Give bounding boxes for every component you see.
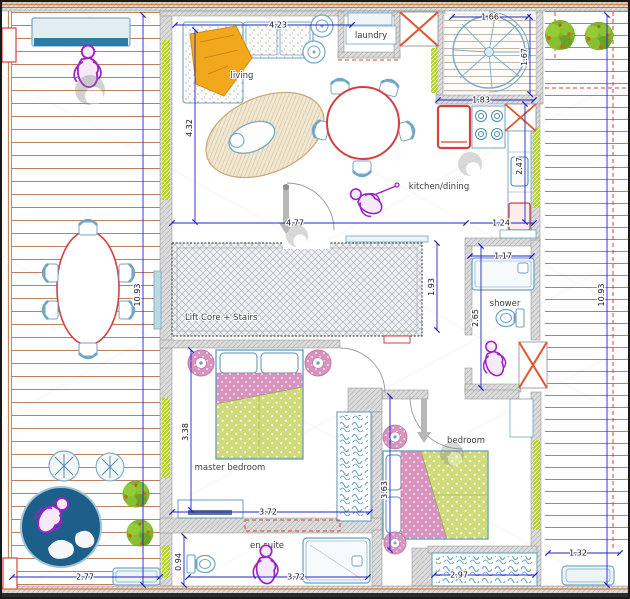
plant (545, 20, 575, 50)
floor-plan-screenshot: living laundry (0, 0, 630, 599)
dim-text: 3.38 (181, 423, 190, 441)
laundry-machine (348, 13, 392, 25)
window-living-west (162, 40, 170, 200)
lift-core-label: Lift Core + Stairs (185, 313, 258, 323)
window-master-west (162, 398, 170, 478)
side-table-2 (303, 41, 325, 63)
deck-chair (119, 264, 134, 282)
round-side-table (96, 453, 124, 481)
window-entry (431, 48, 438, 93)
pillow (386, 497, 401, 533)
dim-text: 2.65 (471, 309, 480, 327)
dim-text: 3.72 (287, 573, 305, 582)
round-side-table (49, 451, 79, 481)
dim-text: 1.67 (520, 48, 529, 66)
dim-text: 1.93 (427, 278, 436, 296)
bedside-rug (383, 425, 407, 449)
dining-table (327, 87, 399, 159)
deck-dining-table (57, 231, 119, 345)
side-table-1 (311, 15, 333, 37)
core-bench (384, 336, 410, 343)
dining-chair (353, 161, 371, 176)
lift-core: Lift Core + Stairs (172, 236, 428, 343)
pillow (220, 353, 257, 373)
window-ensuite-west (162, 545, 170, 577)
floor-plan-canvas: living laundry (0, 0, 630, 599)
bedside-rug (305, 350, 331, 376)
dim-text: 3.72 (259, 508, 277, 517)
bedroom-alcove (510, 399, 533, 437)
column-x-kitchen (505, 104, 536, 131)
shower-drain (518, 263, 528, 273)
deck-bench-mid (154, 271, 161, 329)
deck-right (545, 11, 628, 586)
window-kitchen-east (533, 128, 540, 208)
deck-bench-bottom-left (113, 568, 160, 585)
dim-text: 0.94 (174, 553, 183, 571)
dim-text: 1.66 (481, 13, 499, 22)
dim-text: 2.47 (515, 157, 524, 175)
column-edge-top (2, 28, 16, 62)
column-x-top (400, 12, 438, 46)
vanity-shelf (500, 230, 536, 238)
dishwasher (509, 203, 530, 230)
dim-text: 1.24 (492, 219, 510, 228)
plant (127, 520, 154, 547)
deck-chair (43, 301, 58, 319)
column-x-shower (519, 342, 547, 388)
dim-text: 4.23 (269, 21, 287, 30)
column-edge-bottom (3, 558, 17, 589)
plant (123, 481, 150, 508)
shower-drain (352, 556, 362, 566)
window-bedroom-east (533, 440, 540, 530)
pillow (261, 353, 298, 373)
dim-text: 4.32 (185, 119, 194, 137)
entry-arrow (283, 185, 289, 223)
toilet (187, 555, 215, 573)
master-dresser (178, 500, 243, 518)
master-bedroom-label: master bedroom (195, 463, 266, 473)
shower-label: shower (490, 299, 521, 309)
toilet (496, 309, 524, 327)
dim-text: 1.17 (494, 252, 512, 261)
kitchen-label: kitchen/dining (409, 182, 469, 192)
deck-chair (43, 264, 58, 282)
dim-text: 1.83 (472, 96, 490, 105)
dim-text: 2.77 (76, 573, 94, 582)
wardrobe-hangers (340, 415, 368, 518)
deck-chair (79, 220, 97, 235)
dim-text: 10.93 (597, 284, 606, 307)
bedside-rug (384, 532, 406, 554)
core-shelf (346, 236, 428, 242)
hall-arrow (421, 398, 427, 432)
living-label: living (231, 71, 254, 81)
dim-text: 2.97 (450, 571, 468, 580)
deck-chair (119, 301, 134, 319)
laundry-label: laundry (355, 31, 387, 41)
dim-text: 10.93 (133, 284, 142, 307)
bedside-rug (188, 350, 214, 376)
plant (585, 22, 614, 51)
dim-text: 3.63 (380, 481, 389, 499)
dim-text: 1.32 (569, 549, 587, 558)
deck-chair (79, 343, 97, 358)
